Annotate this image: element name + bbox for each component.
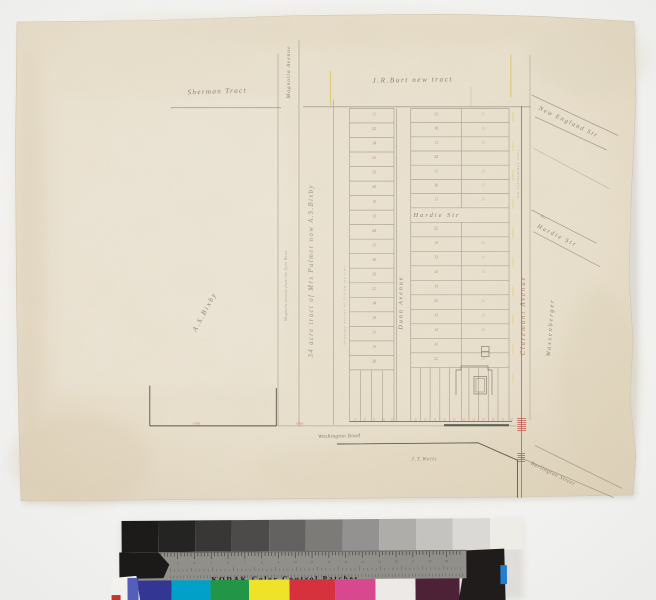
svg-text:18: 18 <box>434 127 438 131</box>
svg-text:14: 14 <box>481 270 485 274</box>
svg-text:13: 13 <box>372 113 376 117</box>
svg-text:14: 14 <box>361 560 365 564</box>
svg-text:16: 16 <box>395 559 399 563</box>
svg-text:14: 14 <box>434 328 438 332</box>
svg-text:26: 26 <box>481 241 485 245</box>
svg-text:22: 22 <box>434 227 438 231</box>
svg-text:150 ft: 150 ft <box>296 421 303 425</box>
svg-text:13: 13 <box>372 345 376 349</box>
svg-text:26: 26 <box>481 328 485 332</box>
svg-text:22: 22 <box>372 127 376 131</box>
svg-text:13: 13 <box>434 314 438 318</box>
svg-text:13: 13 <box>434 256 438 260</box>
svg-text:16: 16 <box>434 184 438 188</box>
svg-text:14: 14 <box>434 241 438 245</box>
svg-text:14: 14 <box>372 302 376 306</box>
svg-text:20: 20 <box>372 331 376 335</box>
svg-text:20: 20 <box>434 270 438 274</box>
svg-text:20: 20 <box>434 113 438 117</box>
svg-text:13: 13 <box>372 272 376 276</box>
svg-text:150 ft: 150 ft <box>193 421 200 425</box>
svg-text:24: 24 <box>372 229 376 233</box>
svg-text:Dunn Avenue: Dunn Avenue <box>398 277 405 330</box>
svg-text:J.R.Burt new tract: J.R.Burt new tract <box>372 75 452 84</box>
svg-text:Mountain avenue 60 ft from the: Mountain avenue 60 ft from the tract <box>343 265 347 346</box>
svg-text:13: 13 <box>481 184 485 188</box>
svg-text:24: 24 <box>434 155 438 159</box>
svg-text:18: 18 <box>428 559 432 563</box>
svg-text:19: 19 <box>445 559 449 563</box>
svg-text:20: 20 <box>481 198 485 202</box>
svg-text:17: 17 <box>411 559 415 563</box>
svg-text:13: 13 <box>434 343 438 347</box>
svg-text:14: 14 <box>481 169 485 173</box>
svg-text:13: 13 <box>481 113 485 117</box>
svg-text:13: 13 <box>434 141 438 145</box>
svg-text:22: 22 <box>372 287 376 291</box>
svg-text:26: 26 <box>434 299 438 303</box>
svg-text:16: 16 <box>481 127 485 131</box>
svg-text:18: 18 <box>372 200 376 204</box>
svg-text:20: 20 <box>372 185 376 189</box>
svg-text:13: 13 <box>434 198 438 202</box>
svg-text:20: 20 <box>481 357 485 361</box>
svg-text:16: 16 <box>372 258 376 262</box>
svg-text:14: 14 <box>372 142 376 146</box>
svg-text:13: 13 <box>434 169 438 173</box>
svg-text:J.T.Wells: J.T.Wells <box>412 458 437 463</box>
svg-text:26: 26 <box>372 156 376 160</box>
svg-text:13: 13 <box>372 243 376 247</box>
svg-text:13: 13 <box>434 285 438 289</box>
svg-text:Washington Road: Washington Road <box>318 433 360 440</box>
svg-text:14: 14 <box>481 314 485 318</box>
svg-text:13: 13 <box>481 141 485 145</box>
svg-text:Magnolia Avenue: Magnolia Avenue <box>286 46 292 100</box>
svg-text:12: 12 <box>327 560 331 564</box>
svg-text:26: 26 <box>372 360 376 364</box>
svg-text:22: 22 <box>481 299 485 303</box>
svg-text:10: 10 <box>294 560 298 564</box>
svg-text:13: 13 <box>372 214 376 218</box>
svg-text:22: 22 <box>434 357 438 361</box>
svg-text:Hardie Str: Hardie Str <box>413 212 460 219</box>
svg-text:13: 13 <box>372 316 376 320</box>
svg-text:Magnolia avenue from the Quin: Magnolia avenue from the Quin Road <box>284 251 288 322</box>
svg-text:13: 13 <box>344 560 348 564</box>
svg-text:Wm Schneideman tract: Wm Schneideman tract <box>516 150 520 198</box>
svg-text:15: 15 <box>378 560 382 564</box>
svg-text:Claremont Avenue: Claremont Avenue <box>520 278 527 356</box>
svg-text:13: 13 <box>372 171 376 175</box>
svg-text:13: 13 <box>481 256 485 260</box>
